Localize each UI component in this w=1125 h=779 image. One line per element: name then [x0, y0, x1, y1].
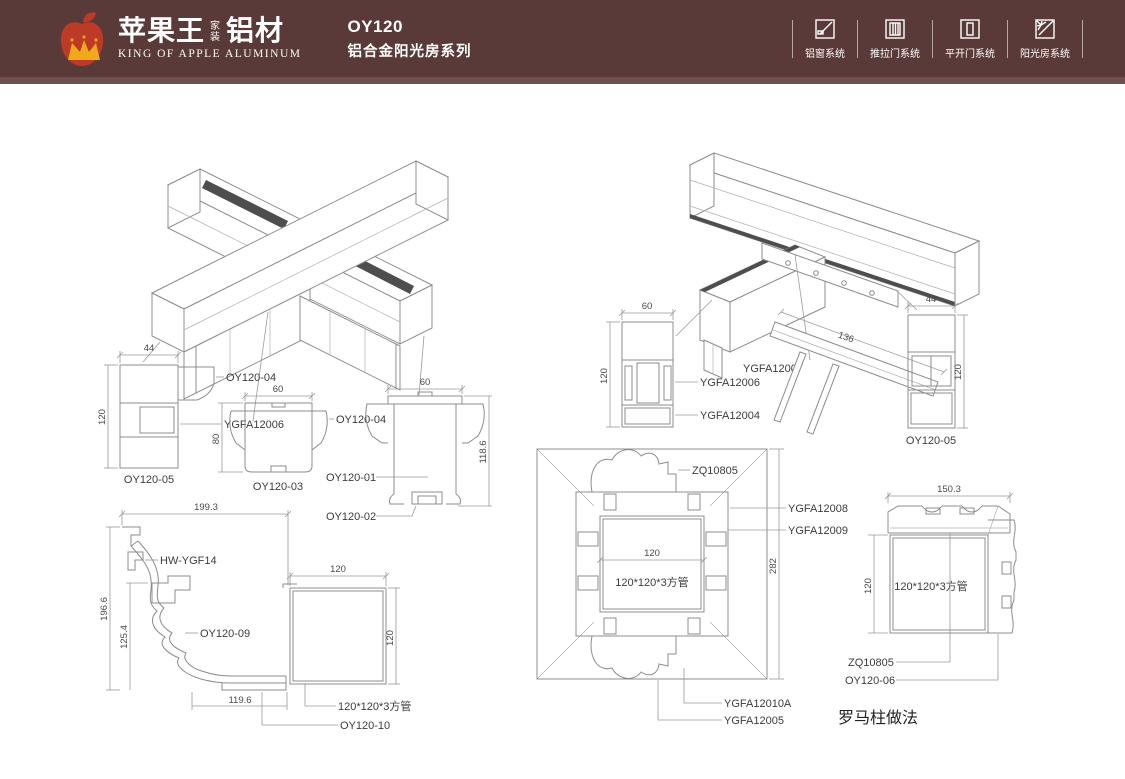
detail-r2-section: 44 120 OY120-05 — [905, 294, 968, 447]
dim-detail-b-height: 80 — [211, 434, 222, 445]
label-ygfa12004: YGFA12004 — [700, 410, 760, 422]
dim-plate-length: 136 — [837, 330, 856, 346]
caption-roman-column-method: 罗马柱做法 — [838, 709, 918, 727]
dim-detail-a-height: 120 — [97, 409, 108, 425]
dim-r1-height: 120 — [599, 368, 610, 384]
dim-gutter-inner: 125.4 — [119, 625, 130, 649]
caption-oy120-05: OY120-05 — [124, 474, 174, 486]
dim-tube-height: 120 — [385, 630, 396, 646]
dim-r2-height: 120 — [953, 364, 964, 380]
label-oy120-02: OY120-02 — [326, 511, 376, 523]
label-oy120-09: OY120-09 — [200, 628, 250, 640]
dim-r2-width: 44 — [926, 294, 937, 305]
dim-r1-width: 60 — [642, 301, 653, 312]
dim-detail-c-width: 60 — [420, 377, 431, 388]
dim-column-tube: 120 — [644, 548, 660, 559]
caption-oy120-05-r: OY120-05 — [906, 435, 956, 447]
label-tube-spec: 120*120*3方管 — [338, 699, 411, 713]
label-zq10805: ZQ10805 — [692, 465, 738, 477]
dim-detail-a-width: 44 — [144, 343, 155, 354]
dim-gutter-bottom: 119.6 — [228, 695, 251, 706]
label-oy120-06: OY120-06 — [845, 675, 895, 687]
catalog-page: 苹果王 家 装 铝材 KING OF APPLE ALUMINUM OY120 … — [0, 0, 1125, 779]
dim-gutter-left: 196.6 — [99, 597, 110, 621]
label-ygfa12008: YGFA12008 — [788, 503, 848, 515]
square-tube-section: 120 120 120*120*3方管 OY120-10 — [262, 564, 411, 732]
caption-oy120-03: OY120-03 — [253, 481, 303, 493]
iso-cross-joint-drawing — [143, 161, 448, 421]
label-zq10805-corner: ZQ10805 — [848, 657, 894, 669]
technical-drawing-canvas: 44 120 OY120-04 YGFA12006 OY120-05 — [0, 0, 1125, 779]
label-hw-ygf14: HW-YGF14 — [160, 555, 217, 567]
dim-column-right: 282 — [768, 558, 779, 574]
dim-gutter-top: 199.3 — [194, 502, 218, 513]
label-ygfa12006-r: YGFA12006 — [700, 377, 760, 389]
dim-corner-left: 120 — [863, 578, 874, 594]
label-oy120-10: OY120-10 — [340, 720, 390, 732]
dim-detail-c-height: 118.6 — [478, 440, 489, 463]
label-oy120-04-wing: OY120-04 — [336, 414, 386, 426]
roman-column-plan: 120 120*120*3方管 ZQ10805 282 YGFA12008 YG… — [537, 449, 848, 727]
dim-tube-width: 120 — [330, 564, 346, 575]
label-ygfa12005: YGFA12005 — [724, 715, 784, 727]
gutter-section: 199.3 196.6 125.4 119.6 HW-YGF14 OY120-0… — [99, 502, 291, 710]
dim-detail-b-width: 60 — [273, 384, 284, 395]
label-oy120-04: OY120-04 — [226, 372, 276, 384]
label-oy120-01: OY120-01 — [326, 472, 376, 484]
roman-column-corner-detail: 150.3 120 120*120*3方管 ZQ10805 OY120-06 罗… — [838, 484, 1016, 727]
label-ygfa12010a: YGFA12010A — [724, 698, 792, 710]
angled-plate-section: YGFA12007 136 — [743, 309, 947, 434]
label-column-tube-spec: 120*120*3方管 — [615, 575, 688, 589]
label-ygfa12006: YGFA12006 — [224, 419, 284, 431]
label-corner-tube-spec: 120*120*3方管 — [894, 579, 967, 593]
detail-c-section: 60 118.6 OY120-01 OY120-02 — [326, 377, 492, 523]
dim-corner-top: 150.3 — [937, 484, 961, 495]
label-ygfa12009: YGFA12009 — [788, 525, 848, 537]
